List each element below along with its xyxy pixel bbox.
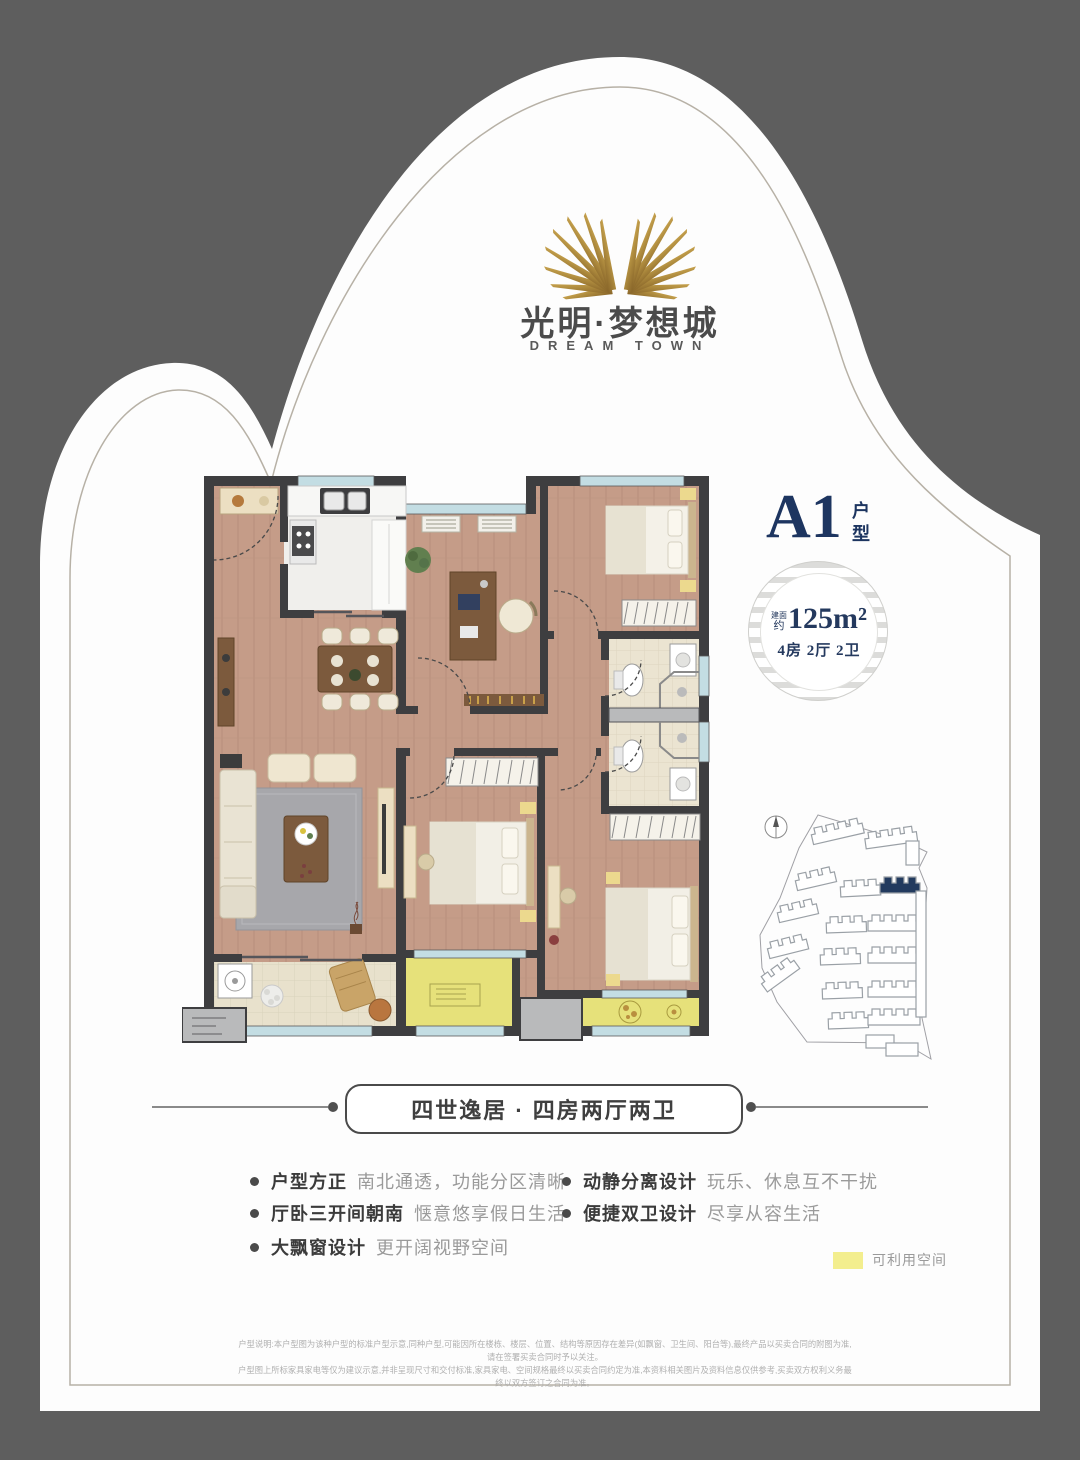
unit-code: A1 — [766, 486, 842, 548]
room-count: 4房 2厅 2卫 — [777, 639, 860, 660]
brand-logo-fan-icon — [510, 178, 730, 308]
bullet-icon — [250, 1209, 259, 1218]
banner-dot-left — [328, 1102, 338, 1112]
floor-plan — [182, 468, 742, 1043]
flyer-page: 光明·梦想城 DREAM TOWN A1 户型 建面约 125m² 4房 2厅 … — [0, 0, 1080, 1460]
entry-furniture — [220, 488, 278, 514]
disclaimer-line-2: 户型图上所标家具家电等仅为建议示意,并非呈现尺寸和交付标准,家具家电、空间规格最… — [237, 1364, 853, 1390]
disclaimer-line-1: 户型说明:本户型图为该种户型的标准户型示意,同种户型,可能因所在楼栋、楼层、位置… — [237, 1338, 853, 1364]
feature-left-3: 大飘窗设计更开阔视野空间 — [250, 1234, 509, 1260]
bullet-icon — [250, 1177, 259, 1186]
legend-label: 可利用空间 — [872, 1250, 947, 1270]
usable-space-1 — [406, 958, 512, 1026]
feature-right-2: 便捷双卫设计尽享从容生活 — [562, 1200, 821, 1226]
site-plan — [740, 793, 970, 1073]
highlighted-building — [880, 877, 920, 893]
banner: 四世逸居 · 四房两厅两卫 — [345, 1084, 743, 1134]
feature-left-1: 户型方正南北通透，功能分区清晰 — [250, 1168, 566, 1194]
feature-right-1: 动静分离设计玩乐、休息互不干扰 — [562, 1168, 878, 1194]
bullet-icon — [250, 1243, 259, 1252]
area-badge-circle: 建面约 125m² 4房 2厅 2卫 — [748, 561, 888, 701]
banner-line-right — [756, 1106, 928, 1108]
feature-left-2: 厅卧三开间朝南惬意悠享假日生活 — [250, 1200, 566, 1226]
brand-name-en: DREAM TOWN — [410, 338, 830, 353]
north-compass-icon — [765, 816, 787, 838]
area-line: 建面约 125m² — [771, 605, 867, 632]
area-value: 125m² — [788, 605, 867, 632]
unit-type-label: 户型 — [852, 500, 870, 545]
banner-line-left — [152, 1106, 328, 1108]
site-buildings — [758, 817, 926, 1056]
equipment-platform — [520, 998, 582, 1040]
legend-swatch — [833, 1252, 863, 1269]
legend: 可利用空间 — [833, 1250, 947, 1270]
bullet-icon — [562, 1177, 571, 1186]
banner-dot-right — [746, 1102, 756, 1112]
bullet-icon — [562, 1209, 571, 1218]
disclaimer: 户型说明:本户型图为该种户型的标准户型示意,同种户型,可能因所在楼栋、楼层、位置… — [237, 1338, 853, 1390]
